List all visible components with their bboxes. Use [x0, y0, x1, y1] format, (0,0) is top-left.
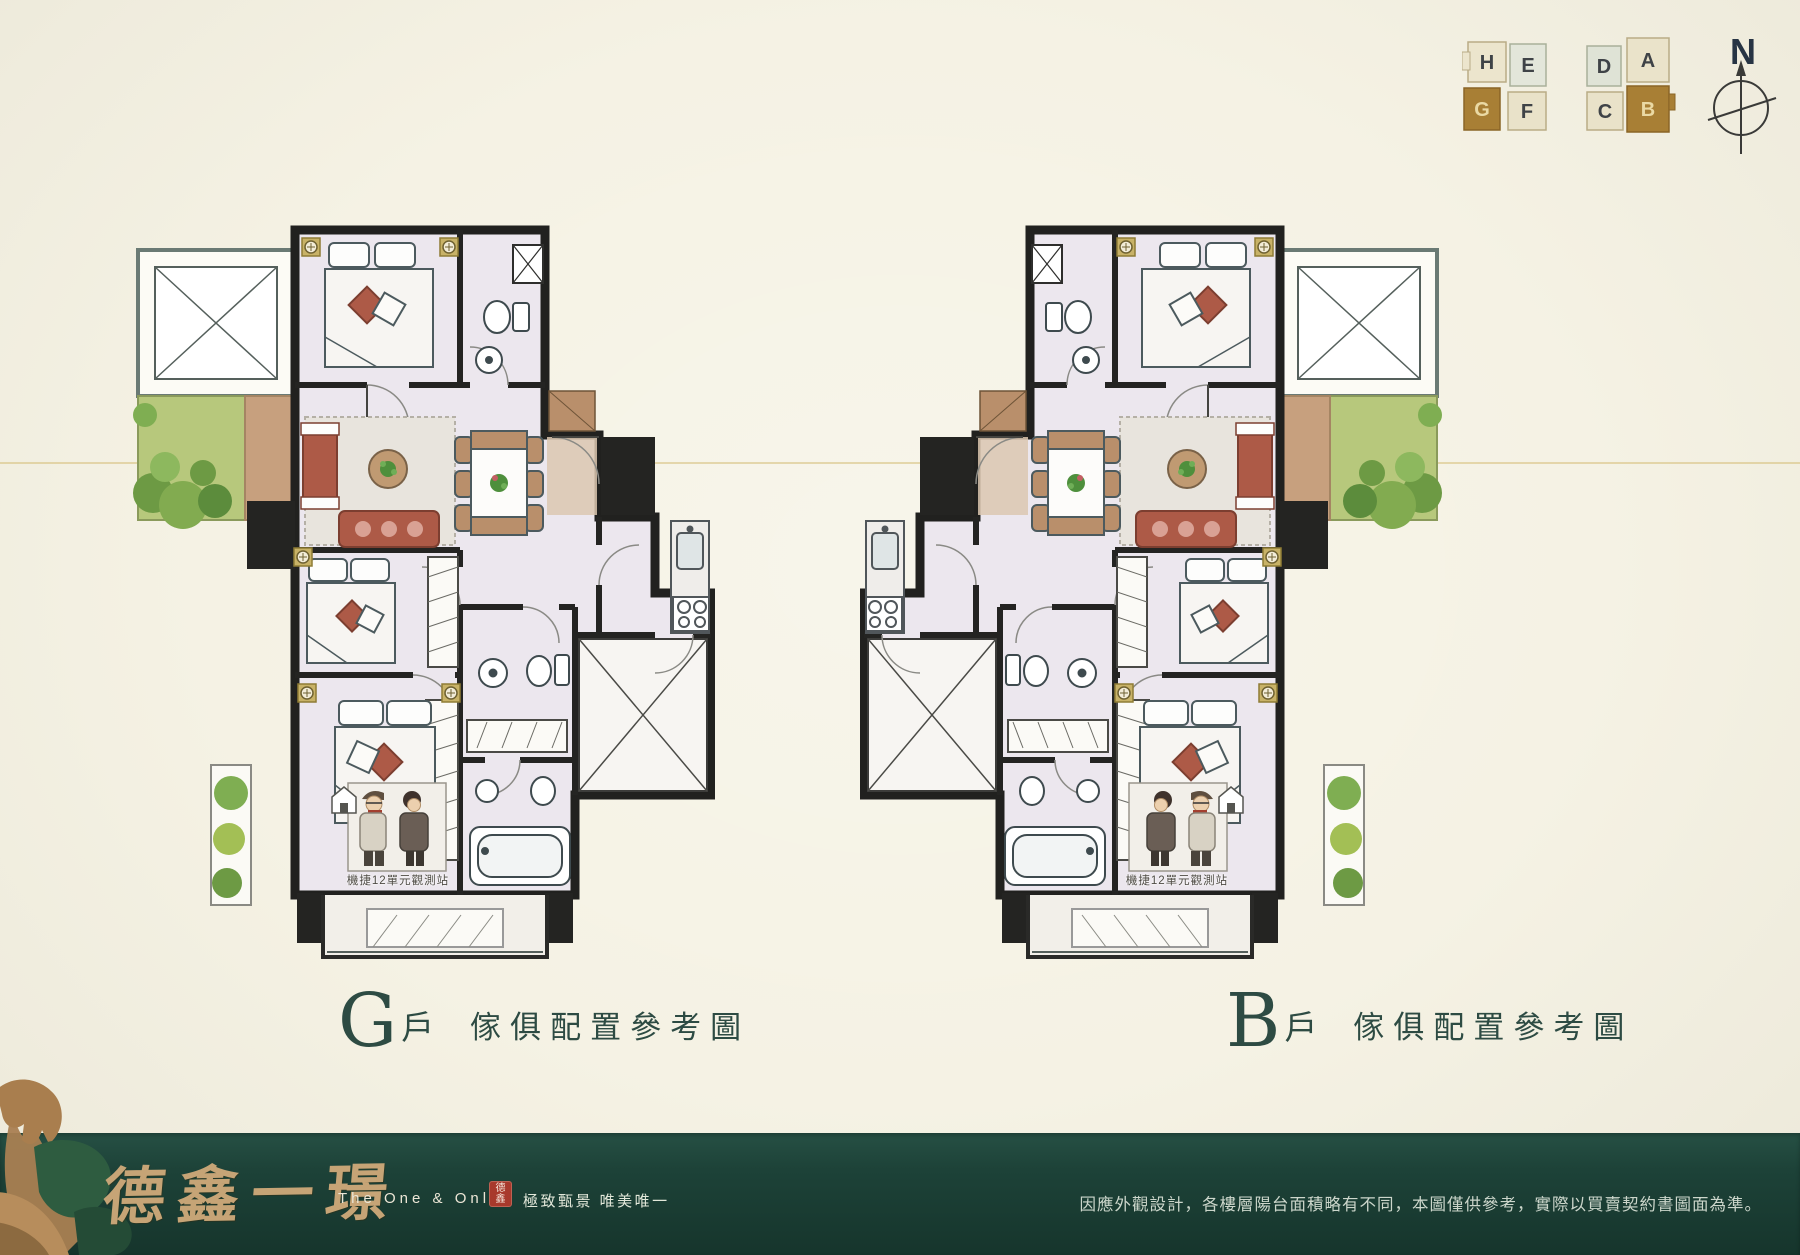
brand-tagline-en: The One & Only — [338, 1190, 502, 1207]
keyplan-unit-g: G — [1474, 99, 1490, 121]
floor-plan-b — [860, 205, 1460, 985]
keyplan-unit-c: C — [1598, 101, 1612, 123]
plan-g-caption: 傢俱配置參考圖 — [470, 1002, 750, 1053]
keyplan-unit-b: B — [1641, 99, 1655, 121]
plan-g-letter: G — [338, 990, 397, 1053]
keyplan-unit-d: D — [1597, 56, 1611, 78]
plan-g-suffix: 戶 — [401, 1001, 434, 1053]
disclaimer-text: 因應外觀設計，各樓層陽台面積略有不同，本圖僅供參考，實際以買賣契約書圖面為準。 — [1080, 1191, 1763, 1215]
keyplan-unit-e: E — [1521, 55, 1534, 77]
compass-icon: N — [1690, 28, 1800, 163]
key-plan-left-building: H E G F — [1462, 38, 1552, 133]
plan-b-letter: B — [1226, 990, 1280, 1053]
brand-logo: 德鑫一璟 — [100, 1141, 404, 1236]
keyplan-unit-a: A — [1641, 50, 1655, 72]
plan-b-label: B 戶 傢俱配置參考圖 — [1226, 990, 1633, 1053]
plan-b-suffix: 戶 — [1284, 1001, 1317, 1053]
plan-b-annotation: 機捷12單元觀測站 — [1102, 872, 1252, 888]
keyplan-unit-h: H — [1480, 52, 1494, 74]
plan-g-label: G 戶 傢俱配置參考圖 — [338, 990, 750, 1053]
brand-seal: 德 鑫 — [489, 1181, 512, 1207]
compass-north-label: N — [1730, 31, 1756, 72]
floor-plan-g — [115, 205, 715, 985]
key-plan-right-building: D A C B — [1585, 34, 1677, 138]
brochure-page: { "page": { "background_color": "#f5f2e4… — [0, 0, 1800, 1255]
plan-b-caption: 傢俱配置參考圖 — [1353, 1002, 1633, 1053]
brand-seal-char2: 鑫 — [489, 1194, 512, 1205]
plan-g-annotation: 機捷12單元觀測站 — [323, 872, 473, 888]
brand-seal-char1: 德 — [489, 1183, 512, 1194]
keyplan-unit-f: F — [1521, 101, 1533, 123]
brand-tagline-zh: 極致甄景 唯美唯一 — [523, 1190, 670, 1211]
